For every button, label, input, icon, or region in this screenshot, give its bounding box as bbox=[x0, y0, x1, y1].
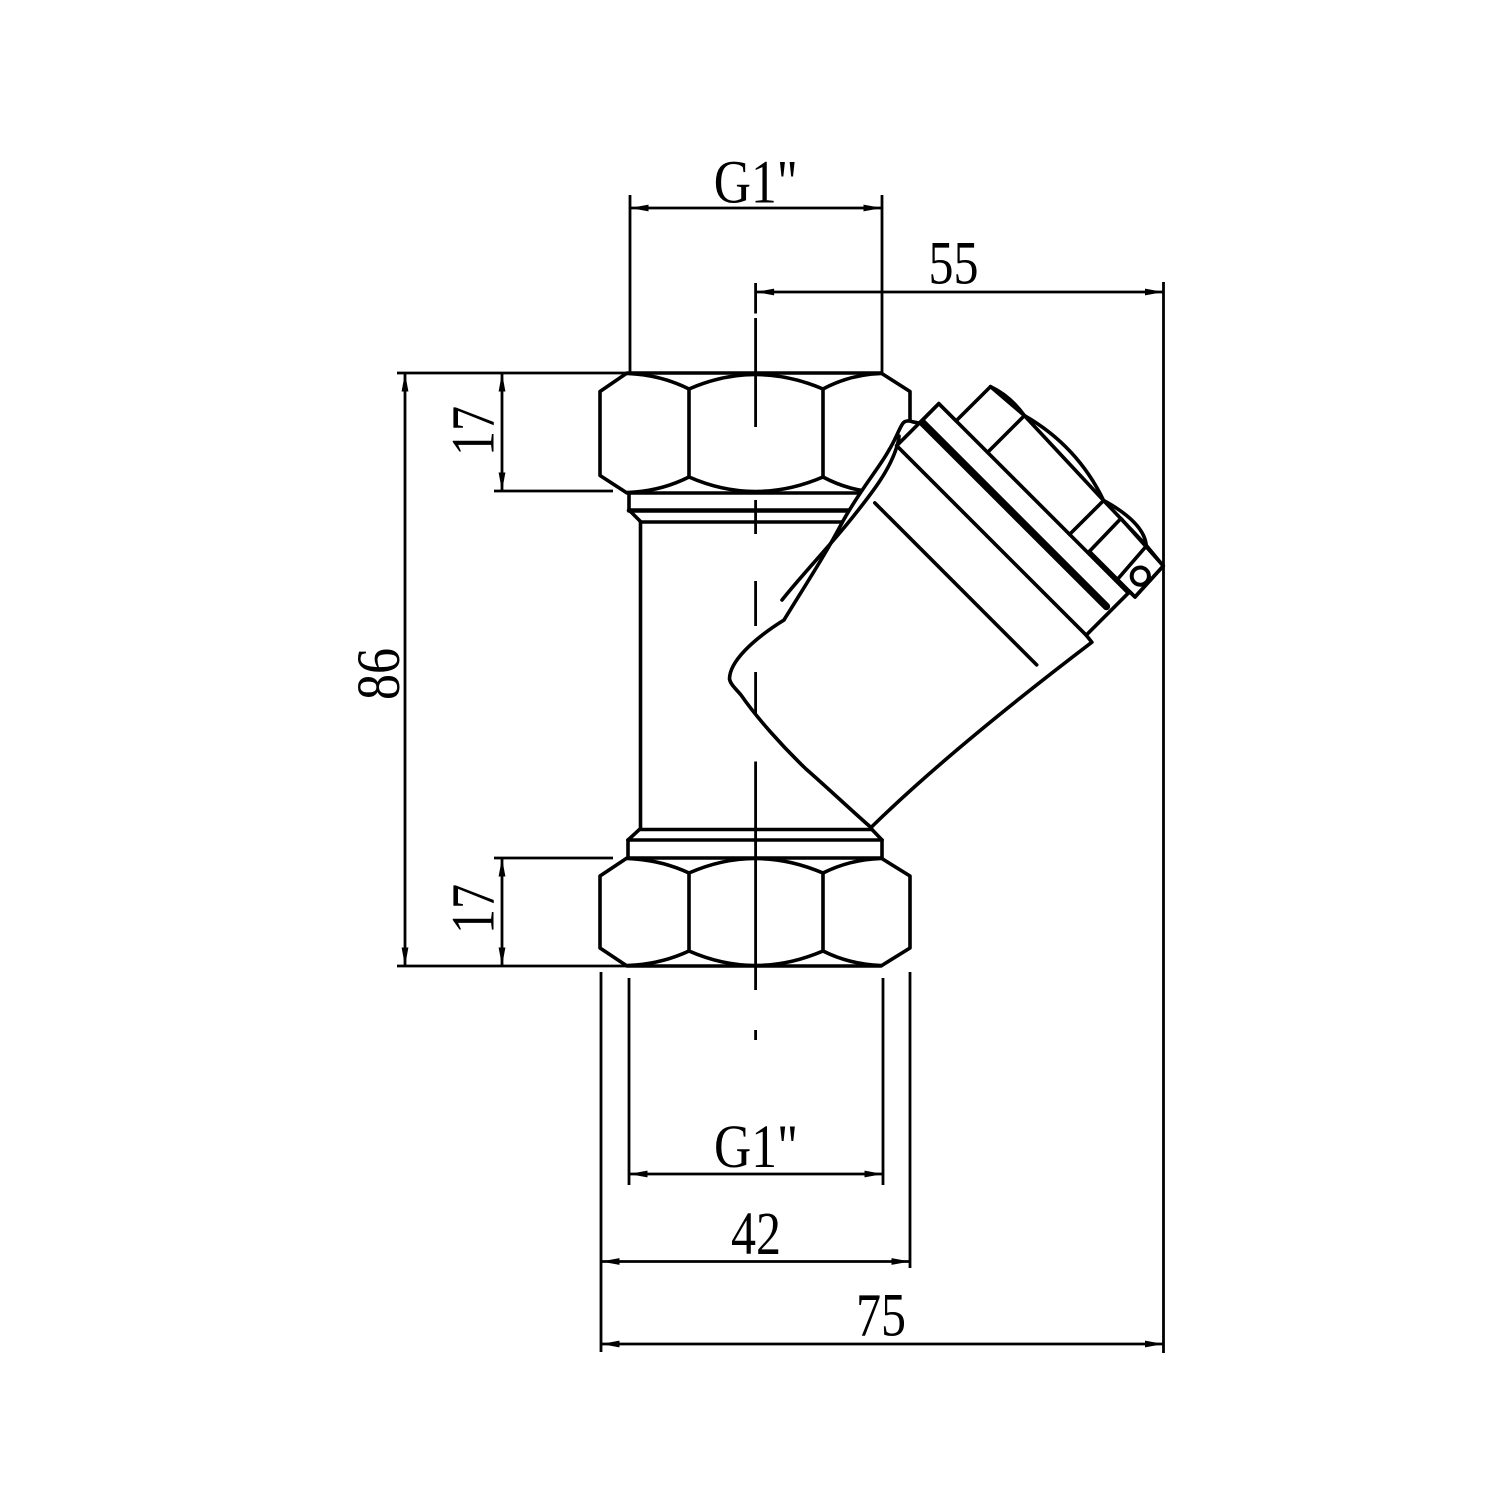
svg-text:G1": G1" bbox=[714, 149, 798, 216]
svg-text:G1": G1" bbox=[714, 1114, 798, 1181]
svg-text:75: 75 bbox=[856, 1283, 906, 1350]
svg-text:86: 86 bbox=[346, 648, 413, 700]
svg-text:17: 17 bbox=[441, 406, 508, 456]
svg-text:17: 17 bbox=[441, 884, 508, 934]
svg-text:42: 42 bbox=[731, 1201, 781, 1268]
svg-text:55: 55 bbox=[929, 230, 979, 297]
